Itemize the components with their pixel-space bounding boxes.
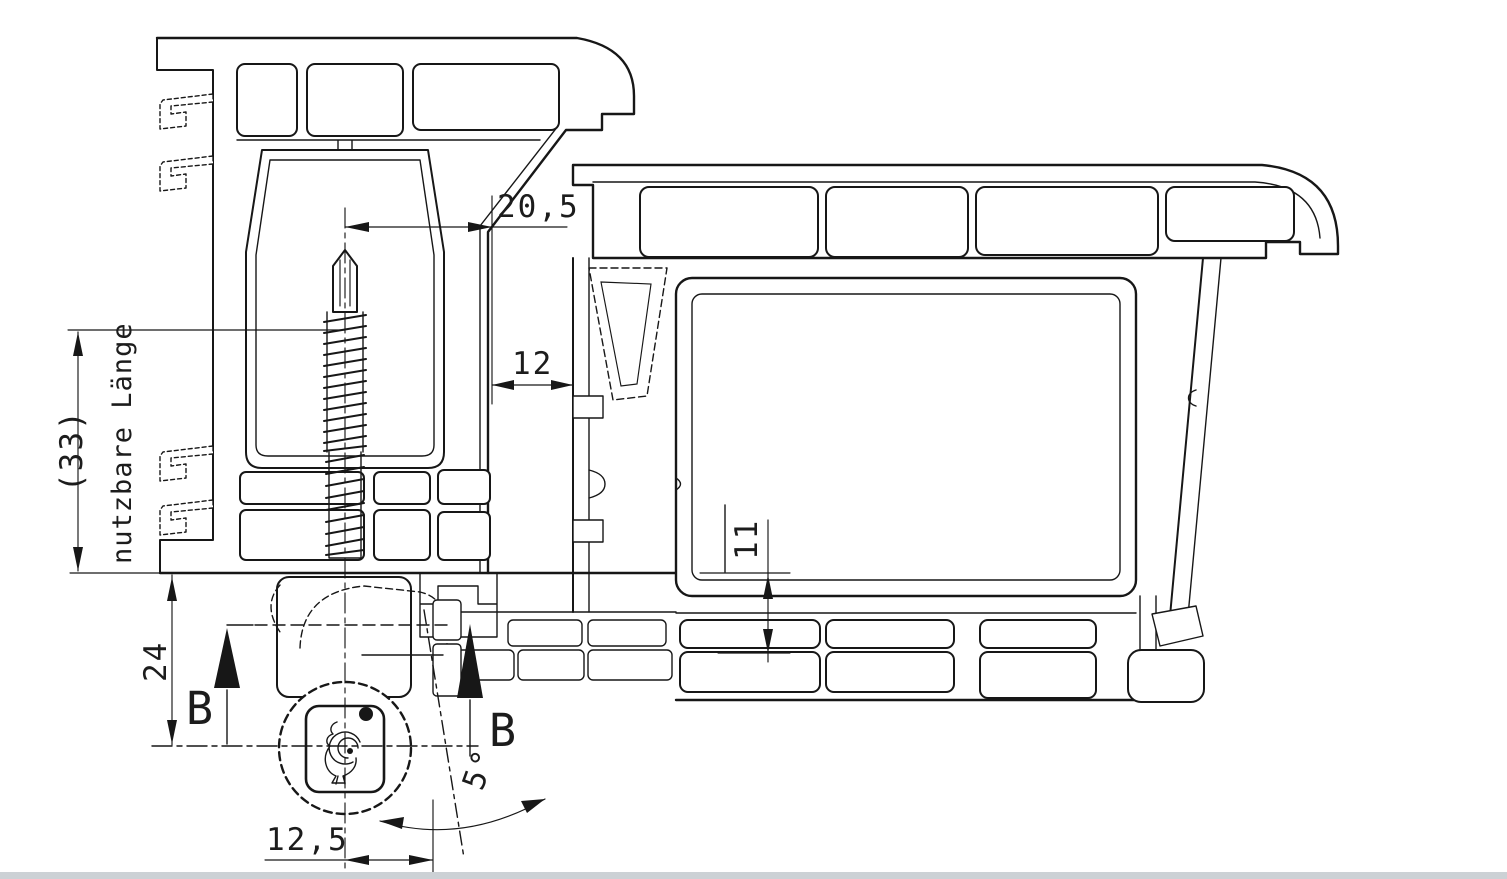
sash-bottom-chambers [680,620,1096,698]
sash-wall-bump [589,470,605,498]
frame-chamber [237,64,297,136]
section-label-b: B [489,704,516,757]
section-marker-b-right: B [457,624,516,757]
frame-chamber [413,64,559,130]
seal-block [588,650,672,680]
dim-label-11: 11 [729,519,765,560]
seal-block [518,650,584,680]
dim-label-33: (33) [54,409,90,492]
dim-label-20-5: 20,5 [497,189,580,225]
dim-hinge-axis: 24 [138,575,177,745]
frame-profile [70,38,690,637]
sash-chamber [976,187,1158,255]
frame-gasket-hooks [160,94,213,535]
seal-block [588,620,666,646]
profile-section-svg: 20,5 12 11 24 (33) nut [0,0,1507,879]
sash-gasket-inner [601,282,651,386]
technical-drawing: 20,5 12 11 24 (33) nut [0,0,1507,879]
frame-chamber [307,64,403,136]
dim-rebate-gap: 12 [492,346,573,390]
dim-label-12-5: 12,5 [266,822,349,858]
hinge-side-block [433,600,461,640]
seal-block [508,620,582,646]
hinge-body [277,577,411,697]
pin-dot [359,707,373,721]
section-label-b: B [186,682,213,735]
sash-wall-step [573,396,603,418]
sash-foot-tab [1152,606,1203,646]
sash-chamber [826,187,968,257]
sash-profile [573,165,1338,702]
brush-seals [445,612,676,680]
dim-label-nutzbare-laenge: nutzbare Länge [107,322,138,564]
sash-right-wall-inner [1188,258,1221,616]
sash-gasket [589,268,667,400]
sash-foot [1128,650,1204,702]
sash-chamber [640,187,818,257]
section-marker-b-left: B [186,628,240,744]
sash-wall-step [573,520,603,542]
sash-chamber [1166,187,1294,241]
bottom-strip [0,872,1507,879]
dim-label-24: 24 [138,641,174,682]
dim-label-12: 12 [512,346,553,382]
sash-right-wall [1170,258,1203,616]
